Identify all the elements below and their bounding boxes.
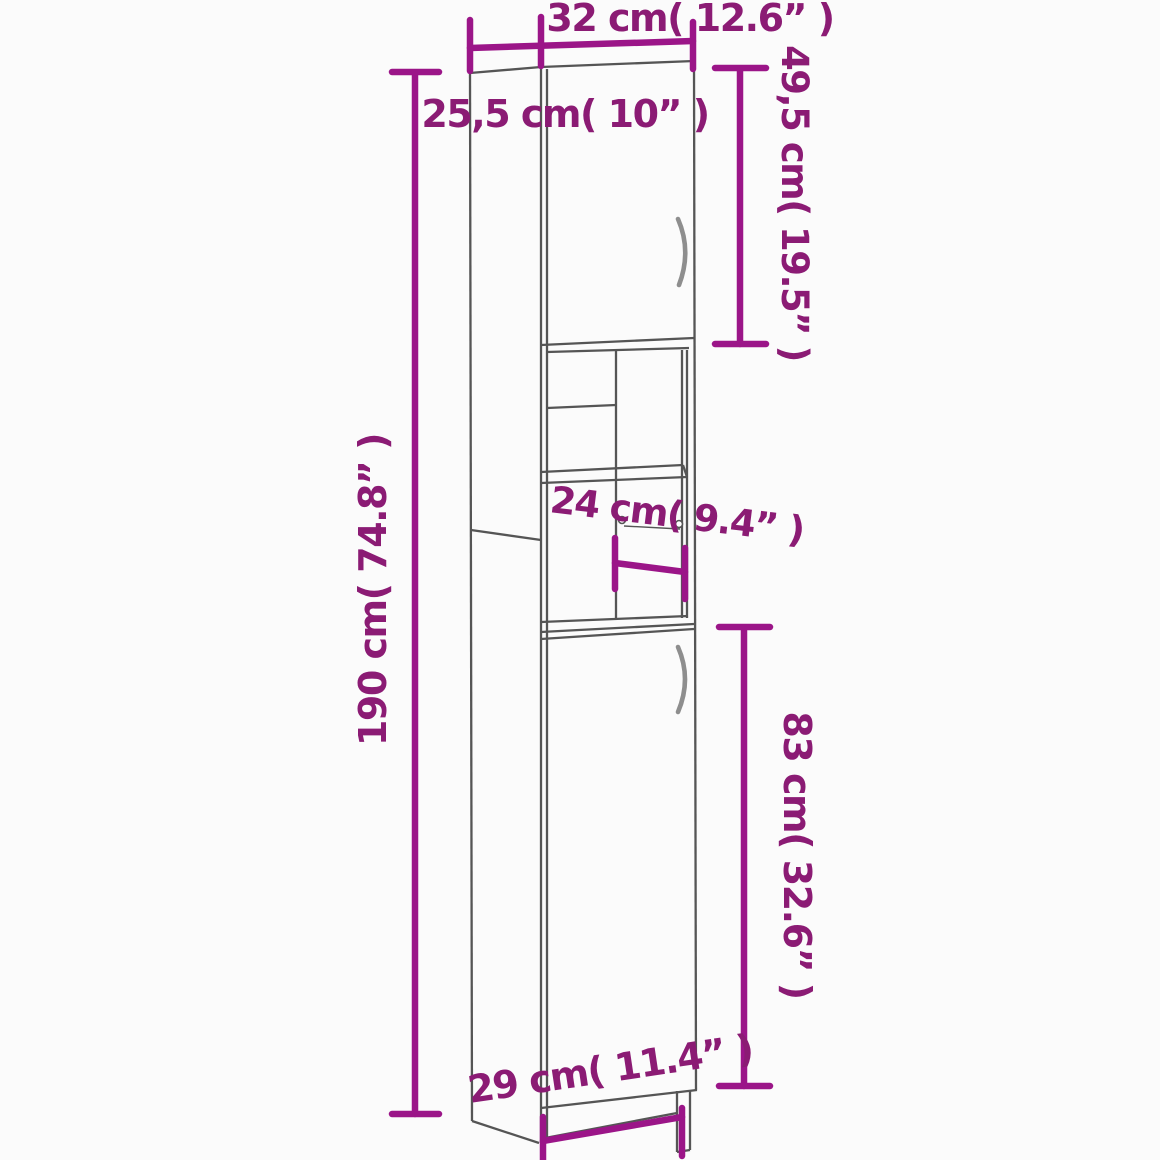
cabinet-dimension-diagram: 32 cm( 12.6” ) 25,5 cm( 10” ) 49,5 cm( 1… <box>0 0 1160 1160</box>
front-top-edge <box>541 61 694 67</box>
side-panel-top-edge <box>470 67 541 73</box>
label-total-height: 190 cm( 74.8” ) <box>351 434 395 746</box>
dim-line-shelf-depth <box>615 538 685 599</box>
cabinet-outline <box>470 61 697 1152</box>
dimension-labels: 32 cm( 12.6” ) 25,5 cm( 10” ) 49,5 cm( 1… <box>351 0 834 1112</box>
shelf-front-top-edge <box>541 465 683 472</box>
upper-door-handle <box>678 219 685 285</box>
niche-top-edge <box>547 348 689 352</box>
dim-line-total-height <box>392 72 439 1114</box>
upper-door-bottom-edge <box>541 338 694 345</box>
dim-line-upper-door-height <box>715 68 766 344</box>
niche-back-panel-line <box>547 405 616 408</box>
label-shelf-depth: 24 cm( 9.4” ) <box>548 478 806 552</box>
side-panel-division-line <box>471 530 541 540</box>
dimension-lines <box>392 17 770 1160</box>
label-lower-door-height: 83 cm( 32.6” ) <box>775 711 819 998</box>
front-right-edge <box>694 61 696 1090</box>
label-width-top: 32 cm( 12.6” ) <box>546 0 833 40</box>
label-upper-door-height: 49,5 cm( 19.5” ) <box>773 45 816 361</box>
side-panel-bottom-edge <box>472 1121 539 1143</box>
lower-door-handle <box>678 647 685 712</box>
label-depth-top: 25,5 cm( 10” ) <box>421 92 708 136</box>
dim-line-lower-door-height <box>719 627 770 1086</box>
diagram-canvas: 32 cm( 12.6” ) 25,5 cm( 10” ) 49,5 cm( 1… <box>0 0 1160 1160</box>
mid-divider-top-edge <box>541 616 688 622</box>
side-panel-left-edge <box>470 73 472 1121</box>
